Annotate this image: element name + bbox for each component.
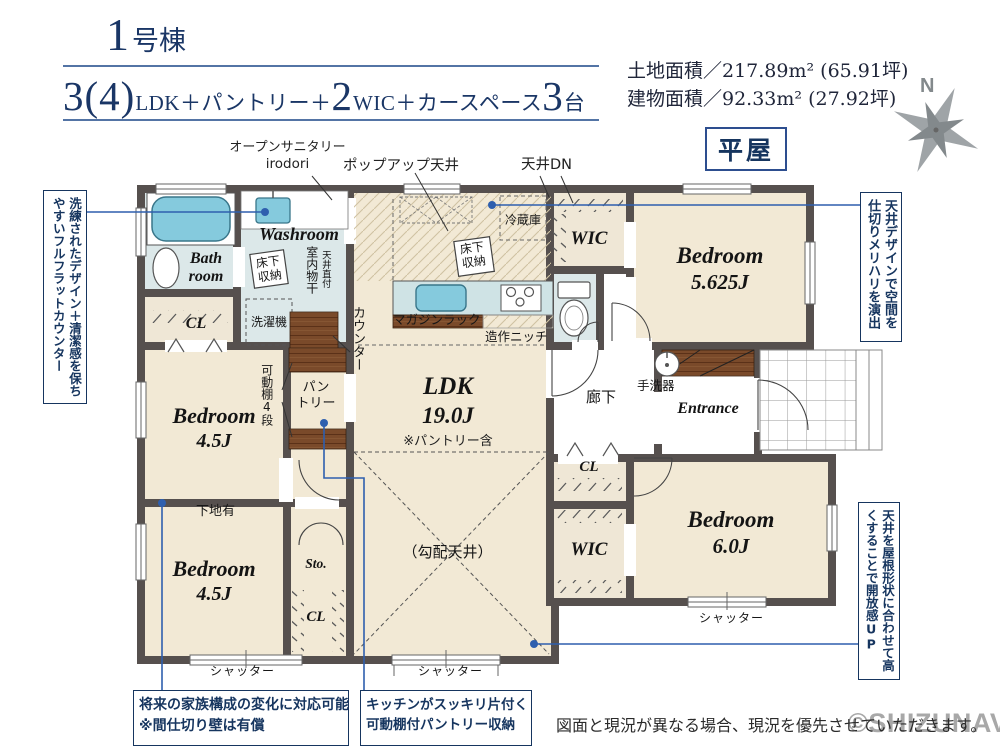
sloped-ceiling-label: （勾配天井）: [379, 543, 516, 561]
layout-car-unit: 台: [564, 87, 586, 117]
pantry-shelf-top: [289, 348, 346, 372]
wic-top-label: WIC: [550, 228, 628, 251]
pantry-label: パン トリー: [289, 380, 343, 411]
note-raised-ceiling: 天井を屋根形状に合わせて高くすることで開放感UP: [858, 502, 900, 680]
refrigerator-label: 冷蔵庫: [499, 213, 547, 227]
note-future-partition: 将来の家族構成の変化に対応可能 ※間仕切り壁は有償: [133, 690, 349, 746]
magazine-rack-label: マガジンラック: [393, 312, 481, 327]
floorplan-page: N 1 号棟 3(4) LDK＋パントリー＋ 2 WIC＋カースペース 3 台 …: [0, 0, 1000, 751]
washing-machine-label: 洗濯機: [246, 315, 292, 329]
pantry-shelf-bottom: [289, 429, 346, 449]
layout-car-count: 3: [542, 72, 564, 120]
toilet-icon: [558, 282, 590, 336]
bedroom-northeast-label: Bedroom 5.625J: [632, 242, 808, 295]
shutter-label-southeast: シャッター: [699, 611, 764, 625]
washroom-label: Washroom: [253, 224, 345, 246]
entrance-label: Entrance: [660, 399, 756, 418]
indoor-drying-label: 室内物干: [304, 246, 318, 304]
kitchen-sink-icon: [416, 285, 466, 311]
movable-shelf-label: 可動棚4段: [259, 364, 273, 436]
note-pantry-storage: キッチンがスッキリ片付く 可動棚付パントリー収納: [360, 690, 532, 746]
underfloor-storage-washroom-label: 床下収納: [253, 254, 285, 285]
bedroom-west2-label: Bedroom 4.5J: [141, 556, 287, 606]
kitchen-counter-wood: [290, 312, 338, 350]
building-number-suffix: 号棟: [132, 19, 186, 58]
ldk-label: LDK 19.0J ※パントリー含: [373, 372, 523, 449]
compass-n-label: N: [920, 75, 934, 97]
header-rule-top: [63, 65, 599, 67]
closet-bottom-label: CL: [291, 608, 341, 626]
building-title: 1 号棟: [106, 8, 186, 61]
counter-label: カウンター: [349, 306, 364, 406]
hand-wash-icon: [655, 352, 679, 376]
hand-wash-label: 手洗器: [637, 378, 675, 393]
bathroom-label: Bath room: [168, 250, 244, 287]
layout-rooms: 3(4): [63, 72, 135, 120]
land-area: 土地面積／217.89m² (65.91坪): [627, 56, 908, 83]
disclaimer-text: 図面と現況が異なる場合、現況を優先させていただきます。: [556, 716, 986, 735]
building-number: 1: [106, 8, 129, 61]
built-in-niche-label: 造作ニッチ: [485, 329, 548, 344]
ceiling-down-label: 天井DN: [521, 157, 572, 174]
ceiling-mounted-label: 天井直付: [319, 250, 330, 296]
note-ceiling-design: 天井デザインで空間を仕切りメリハリを演出: [860, 192, 902, 342]
shutter-label-west: シャッター: [210, 664, 275, 678]
building-area: 建物面積／92.33m² (27.92坪): [627, 84, 896, 111]
closet-mid-label: CL: [550, 458, 628, 476]
open-sanitary-label: オープンサニタリー irodori: [215, 140, 360, 172]
single-story-badge: 平屋: [705, 127, 787, 171]
wic-bottom-label: WIC: [550, 539, 628, 562]
header-rule-bottom: [63, 119, 599, 121]
underfloor-storage-kitchen-label: 床下収納: [456, 240, 490, 272]
ldk-pantry-note: ※パントリー含: [373, 434, 523, 450]
bedroom-southeast-label: Bedroom 6.0J: [630, 506, 832, 559]
hallway-label: 廊下: [586, 388, 616, 406]
entrance-porch: [760, 350, 882, 450]
note-counter-design: 洗練されたデザイン＋清潔感を保ちやすいフルフラットカウンター: [43, 190, 87, 404]
layout-summary: 3(4) LDK＋パントリー＋ 2 WIC＋カースペース 3 台: [63, 72, 599, 120]
storage-label: Sto.: [291, 556, 341, 572]
washroom-sink-icon: [256, 198, 290, 223]
closet-topleft-label: CL: [176, 314, 216, 333]
layout-wic-car: WIC＋カースペース: [353, 87, 542, 117]
wall-backing-label: 下地有: [196, 504, 235, 520]
popup-ceiling-label: ポップアップ天井: [343, 158, 459, 175]
bathtub-icon: [152, 197, 230, 241]
layout-ldk-pantry: LDK＋パントリー＋: [135, 87, 331, 117]
shutter-label-ldk: シャッター: [418, 664, 483, 678]
layout-wic-count: 2: [332, 72, 354, 120]
